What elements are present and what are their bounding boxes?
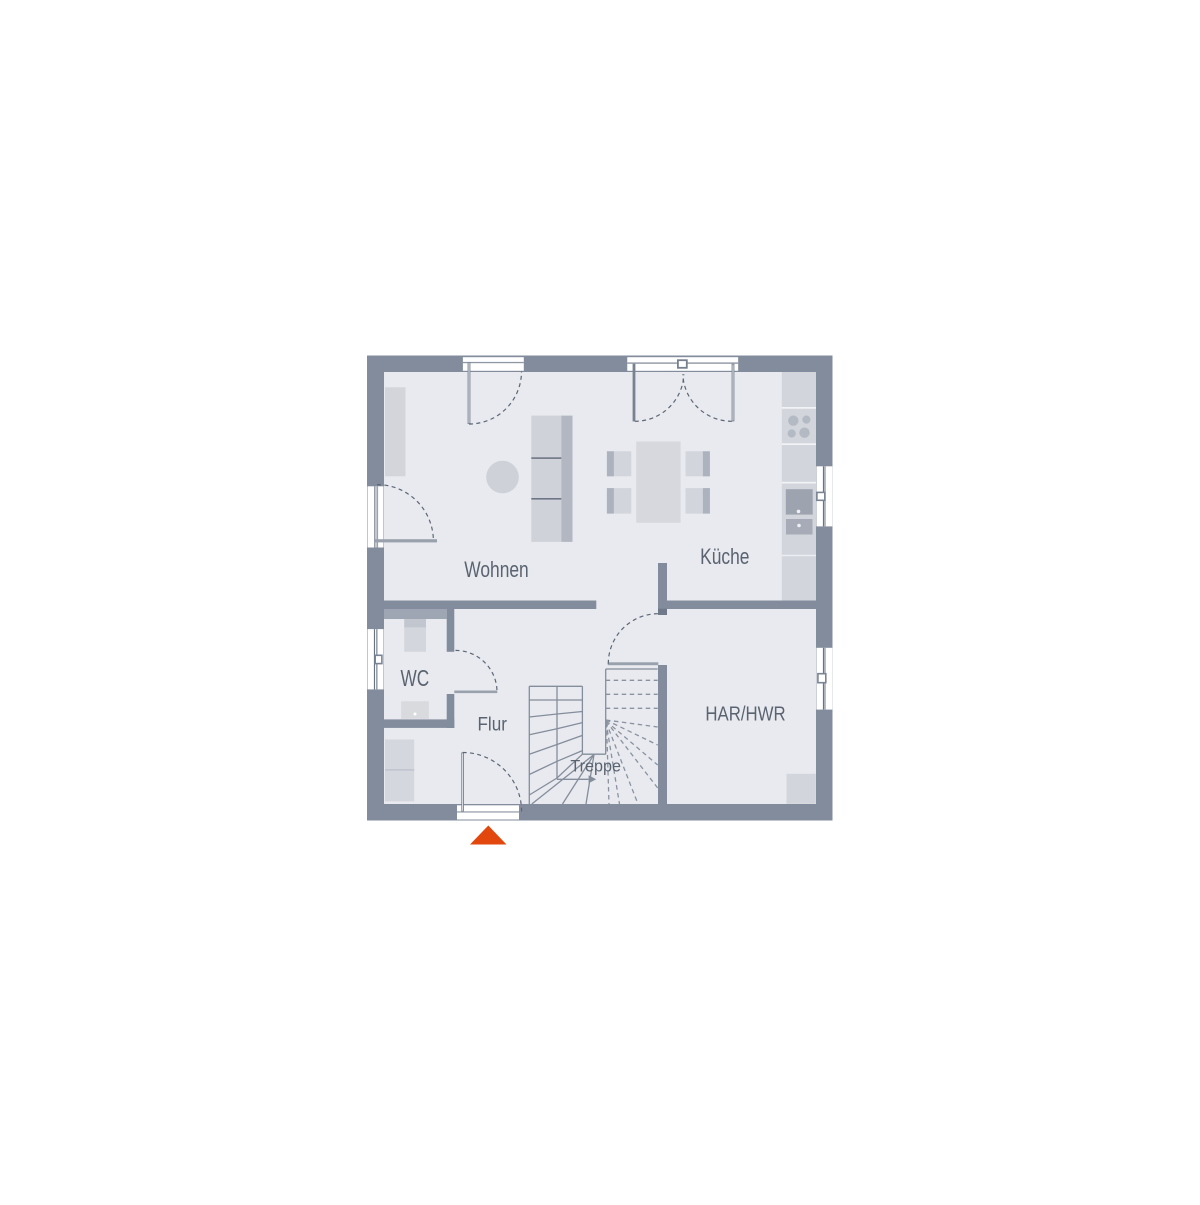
svg-text:HAR/HWR: HAR/HWR (705, 702, 785, 725)
svg-text:Wohnen: Wohnen (464, 558, 528, 582)
svg-text:WC: WC (401, 667, 430, 692)
svg-text:Treppe: Treppe (570, 756, 621, 775)
svg-text:Flur: Flur (477, 714, 506, 735)
svg-text:Küche: Küche (700, 545, 749, 569)
